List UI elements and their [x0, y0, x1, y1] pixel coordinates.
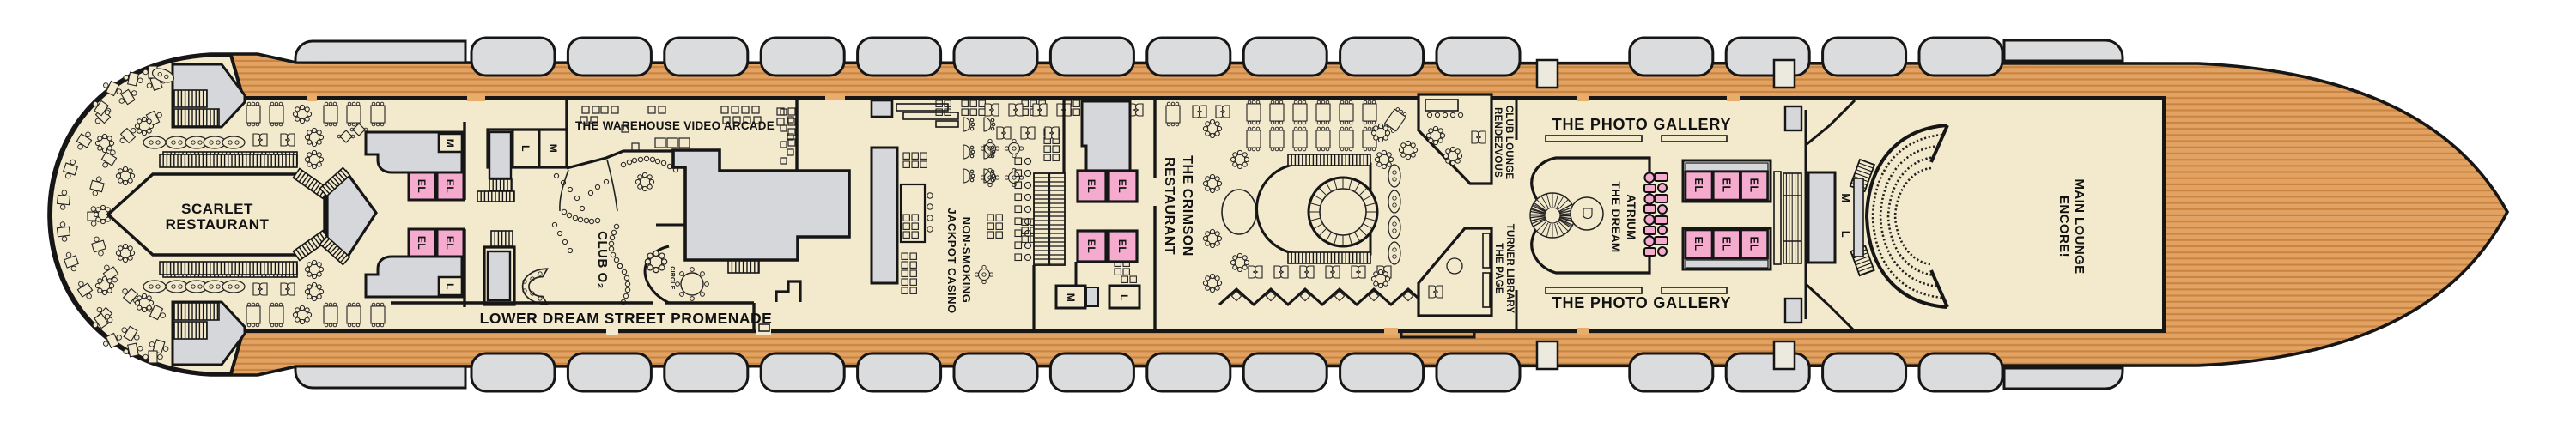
svg-text:M: M	[444, 139, 456, 148]
svg-text:M: M	[547, 144, 559, 154]
svg-text:THE PAGE: THE PAGE	[1493, 243, 1504, 294]
svg-text:EL: EL	[1720, 178, 1732, 193]
svg-text:EL: EL	[1116, 239, 1128, 253]
svg-text:RENDEZVOUS: RENDEZVOUS	[1492, 107, 1503, 178]
svg-text:CLUB O₂: CLUB O₂	[595, 231, 610, 289]
svg-text:EL: EL	[1085, 179, 1097, 193]
svg-text:ATRIUM: ATRIUM	[1625, 194, 1637, 239]
svg-text:EL: EL	[1720, 237, 1732, 251]
svg-text:NON-SMOKING: NON-SMOKING	[960, 217, 973, 304]
svg-text:EL: EL	[444, 179, 456, 193]
svg-text:EL: EL	[1692, 237, 1704, 251]
svg-text:ENCORE!: ENCORE!	[2057, 196, 2071, 257]
svg-text:EL: EL	[1692, 178, 1704, 193]
svg-text:M: M	[1065, 293, 1077, 303]
svg-text:EL: EL	[1116, 179, 1128, 193]
svg-text:L: L	[1118, 294, 1130, 301]
svg-text:EL: EL	[444, 236, 456, 250]
svg-text:THE PHOTO GALLERY: THE PHOTO GALLERY	[1552, 294, 1732, 311]
svg-text:THE PHOTO GALLERY: THE PHOTO GALLERY	[1552, 116, 1732, 133]
svg-text:RESTAURANT: RESTAURANT	[166, 216, 270, 233]
svg-text:JACKPOT CASINO: JACKPOT CASINO	[945, 208, 958, 313]
svg-text:M: M	[1839, 193, 1852, 202]
svg-text:L: L	[519, 145, 532, 152]
svg-text:TURNER LIBRARY: TURNER LIBRARY	[1504, 224, 1515, 314]
svg-text:L: L	[1839, 231, 1852, 238]
svg-text:THE WAREHOUSE VIDEO ARCADE: THE WAREHOUSE VIDEO ARCADE	[575, 119, 775, 132]
svg-text:SCARLET: SCARLET	[181, 201, 253, 217]
svg-text:LOWER DREAM STREET PROMENADE: LOWER DREAM STREET PROMENADE	[480, 310, 773, 327]
svg-text:EL: EL	[1748, 237, 1760, 251]
svg-text:CLUB LOUNGE: CLUB LOUNGE	[1504, 106, 1514, 180]
svg-text:EL: EL	[1085, 239, 1097, 253]
svg-text:L: L	[444, 283, 456, 290]
svg-text:THE CRIMSON: THE CRIMSON	[1180, 155, 1194, 257]
svg-text:EL: EL	[1748, 178, 1760, 193]
svg-text:CIRCLE: CIRCLE	[669, 266, 675, 289]
svg-text:EL: EL	[416, 236, 428, 250]
svg-text:MAIN LOUNGE: MAIN LOUNGE	[2072, 178, 2087, 274]
svg-text:THE DREAM: THE DREAM	[1609, 182, 1622, 253]
svg-text:RESTAURANT: RESTAURANT	[1162, 157, 1176, 255]
svg-text:EL: EL	[416, 179, 428, 193]
